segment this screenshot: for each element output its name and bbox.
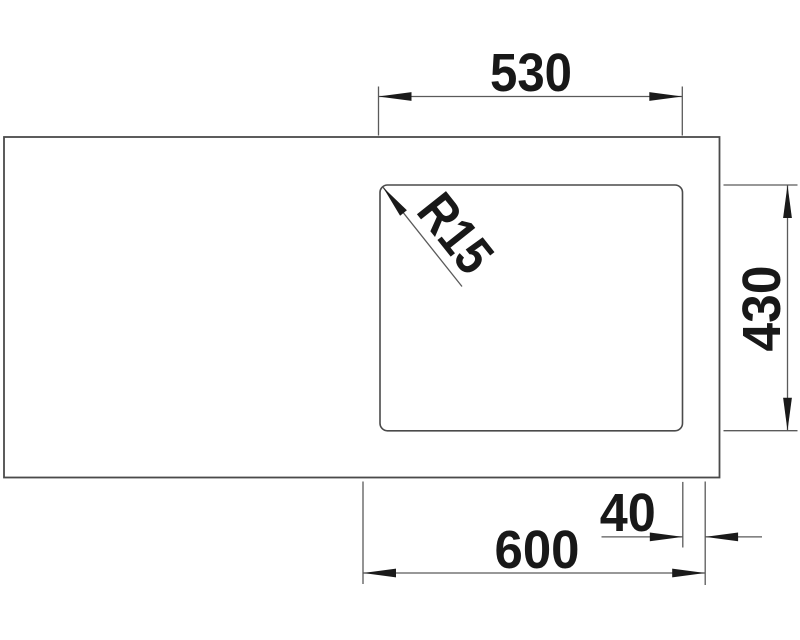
svg-text:40: 40 <box>600 483 656 543</box>
svg-text:530: 530 <box>490 43 572 103</box>
svg-text:600: 600 <box>495 520 580 580</box>
svg-text:430: 430 <box>732 266 792 352</box>
svg-text:R15: R15 <box>406 182 505 285</box>
